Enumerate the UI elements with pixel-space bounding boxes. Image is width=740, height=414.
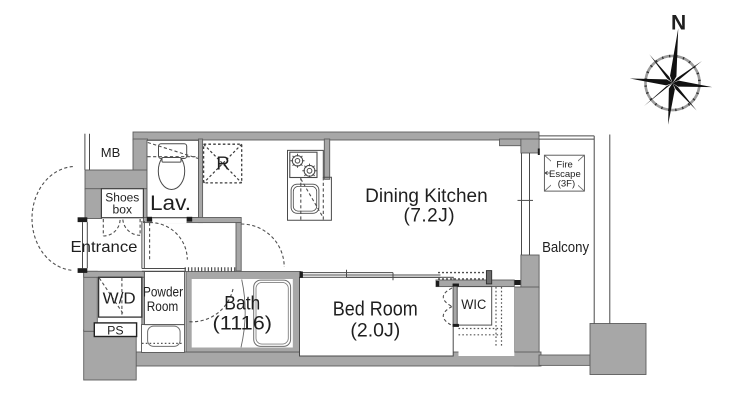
svg-text:(2.0J): (2.0J) [350,320,400,342]
svg-text:WIC: WIC [461,297,486,312]
svg-text:(3F): (3F) [558,179,575,190]
svg-text:Powder: Powder [143,285,183,300]
svg-text:Lav.: Lav. [150,191,191,215]
svg-text:Bed Room: Bed Room [333,299,418,321]
svg-text:(7.2J): (7.2J) [404,206,456,227]
svg-text:MB: MB [101,145,121,160]
svg-text:N: N [671,12,686,35]
svg-text:Bath: Bath [224,293,260,315]
svg-text:Balcony: Balcony [542,239,589,256]
svg-text:(1116): (1116) [213,313,273,335]
svg-text:box: box [113,202,133,216]
svg-text:Entrance: Entrance [71,239,138,256]
svg-text:W/D: W/D [103,291,136,308]
svg-text:PS: PS [107,326,124,338]
svg-text:R: R [216,153,229,174]
svg-text:Dining Kitchen: Dining Kitchen [365,186,488,207]
svg-text:Room: Room [147,299,179,314]
